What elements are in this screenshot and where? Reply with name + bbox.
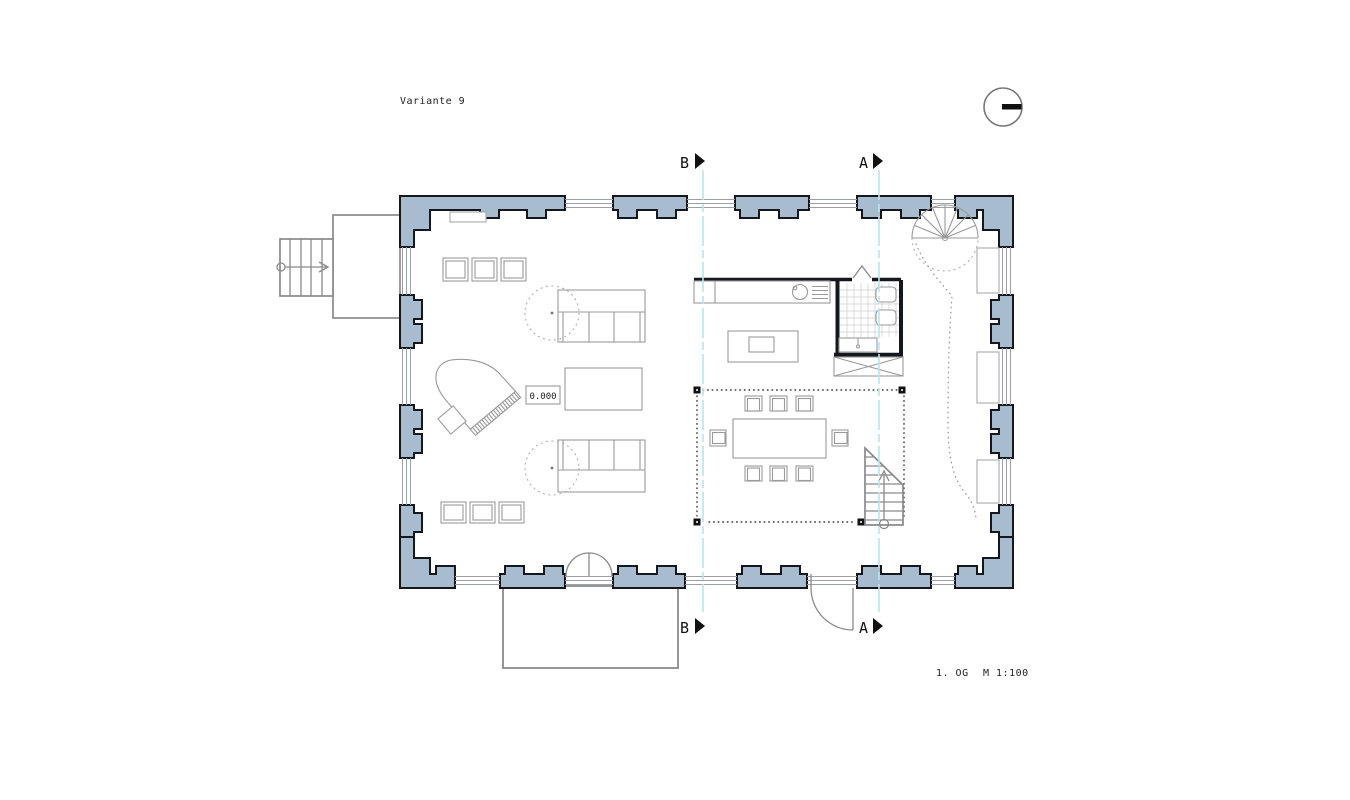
floor-plan-canvas: 0.000 bbox=[0, 0, 1350, 800]
wall-pier bbox=[613, 196, 687, 218]
wall-pier bbox=[857, 196, 931, 218]
balcony-bottom bbox=[503, 586, 678, 668]
section-arrow-icon bbox=[873, 153, 883, 169]
wall-pier bbox=[613, 566, 685, 588]
exterior-stair-left bbox=[277, 215, 400, 318]
single-door-bottom bbox=[811, 574, 853, 630]
wall-corner-top-right bbox=[955, 196, 1013, 247]
north-indicator-icon bbox=[984, 88, 1022, 126]
bath-door-arrow bbox=[853, 266, 871, 278]
scale-label: M 1:100 bbox=[983, 668, 1029, 679]
section-marker-b-bottom: B bbox=[680, 619, 689, 637]
level-marker: 0.000 bbox=[526, 386, 560, 404]
wall-pier bbox=[400, 505, 422, 537]
kitchen bbox=[694, 281, 830, 362]
window-sill bbox=[450, 212, 486, 222]
window-bench bbox=[977, 248, 999, 293]
stool-row-top bbox=[443, 258, 526, 281]
window-bench bbox=[977, 460, 999, 503]
section-marker-a-bottom: A bbox=[859, 619, 868, 637]
dotted-curve bbox=[916, 244, 976, 518]
window-bench bbox=[977, 352, 999, 403]
floor-label: 1. OG bbox=[936, 668, 969, 679]
dining-area bbox=[710, 396, 848, 481]
wall-pier bbox=[991, 295, 1013, 348]
wall-pier bbox=[400, 295, 422, 348]
wall-pier bbox=[735, 196, 809, 218]
wall-pier bbox=[991, 405, 1013, 458]
level-value: 0.000 bbox=[529, 392, 556, 402]
drawing-title: Variante 9 bbox=[400, 96, 465, 107]
straight-stair bbox=[865, 448, 903, 529]
wall-pier bbox=[737, 566, 807, 588]
coffee-table bbox=[565, 368, 642, 410]
wall-pier bbox=[857, 566, 931, 588]
shaft bbox=[834, 357, 903, 376]
section-marker-a-top: A bbox=[859, 154, 868, 172]
double-entry-door bbox=[566, 553, 612, 576]
dining-table bbox=[733, 419, 826, 458]
living-area: 0.000 bbox=[427, 258, 645, 523]
kitchen-island bbox=[728, 331, 798, 362]
stool-row-bottom bbox=[441, 502, 524, 523]
sofa-upper bbox=[525, 286, 645, 342]
spiral-stair bbox=[912, 205, 978, 271]
wall-corner-bottom-left bbox=[400, 537, 455, 588]
section-marker-b-top: B bbox=[680, 154, 689, 172]
floor-plan-drawing: 0.000 bbox=[0, 0, 1350, 800]
sofa-lower bbox=[525, 440, 645, 495]
section-arrow-icon bbox=[695, 618, 705, 634]
section-lines bbox=[703, 170, 879, 612]
kitchen-counter bbox=[694, 281, 830, 303]
section-arrow-icon bbox=[873, 618, 883, 634]
bathroom bbox=[834, 283, 903, 376]
section-arrow-icon bbox=[695, 153, 705, 169]
wall-pier bbox=[400, 405, 422, 458]
wall-pier bbox=[500, 566, 565, 588]
wall-pier bbox=[991, 505, 1013, 537]
wall-corner-bottom-right bbox=[955, 537, 1013, 588]
